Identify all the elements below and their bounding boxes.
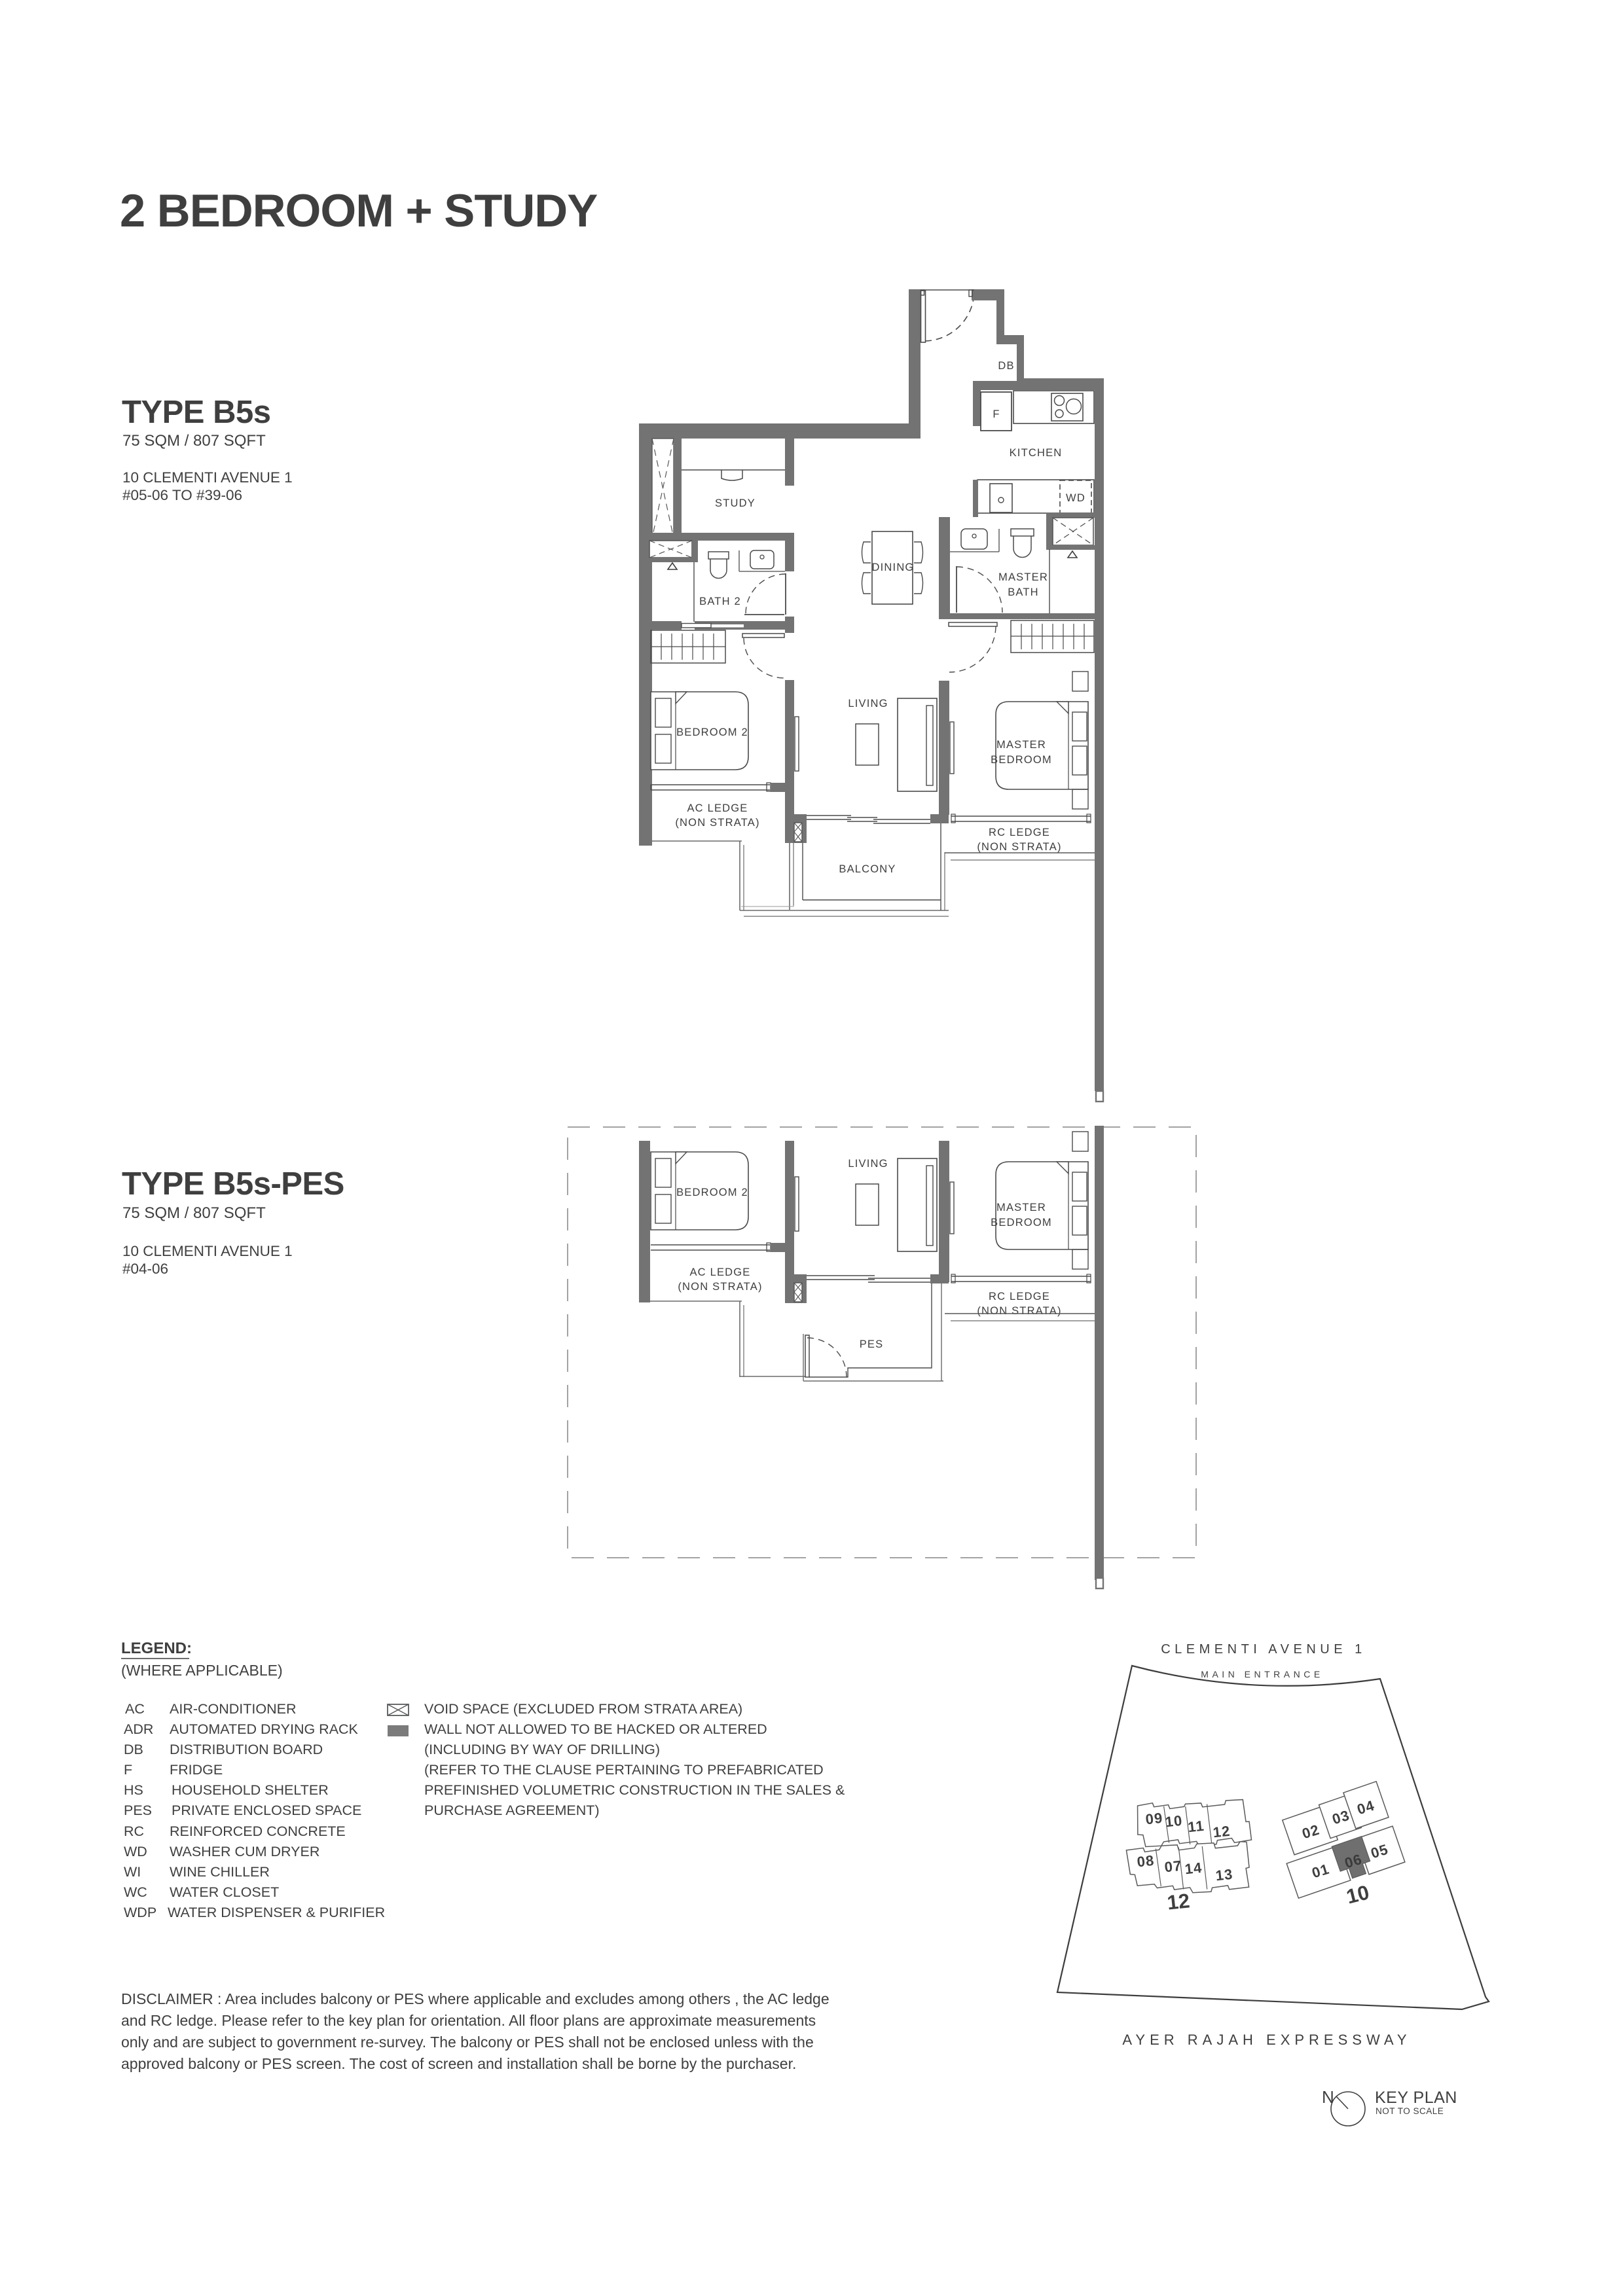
svg-text:RC: RC [124, 1823, 144, 1839]
svg-text:PREFINISHED VOLUMETRIC CONSTRU: PREFINISHED VOLUMETRIC CONSTRUCTION IN T… [424, 1782, 845, 1798]
svg-text:10 CLEMENTI AVENUE 1: 10 CLEMENTI AVENUE 1 [122, 469, 293, 486]
svg-text:CLEMENTI AVENUE 1: CLEMENTI AVENUE 1 [1161, 1642, 1366, 1657]
svg-text:approved balcony or PES screen: approved balcony or PES screen. The cost… [121, 2055, 796, 2072]
svg-text:and RC ledge. Please refer to: and RC ledge. Please refer to the key pl… [121, 2012, 816, 2029]
svg-text:WATER DISPENSER & PURIFIER: WATER DISPENSER & PURIFIER [168, 1905, 385, 1920]
svg-text:NOT TO SCALE: NOT TO SCALE [1376, 2106, 1444, 2116]
svg-text:WASHER CUM DRYER: WASHER CUM DRYER [170, 1844, 319, 1859]
svg-text:N: N [1322, 2087, 1334, 2107]
svg-text:PES: PES [124, 1803, 152, 1818]
svg-text:WI: WI [124, 1864, 141, 1880]
svg-text:WALL NOT ALLOWED TO BE HACKED: WALL NOT ALLOWED TO BE HACKED OR ALTERED [424, 1721, 767, 1737]
svg-text:LIVING: LIVING [848, 1158, 888, 1170]
svg-text:AIR-CONDITIONER: AIR-CONDITIONER [170, 1701, 297, 1717]
svg-text:AC: AC [125, 1701, 145, 1717]
svg-text:14: 14 [1184, 1859, 1203, 1878]
svg-text:11: 11 [1187, 1818, 1205, 1836]
svg-text:DISTRIBUTION BOARD: DISTRIBUTION BOARD [170, 1742, 323, 1757]
svg-text:AC LEDGE: AC LEDGE [687, 802, 748, 814]
svg-text:PURCHASE AGREEMENT): PURCHASE AGREEMENT) [424, 1803, 600, 1818]
svg-text:10: 10 [1344, 1880, 1372, 1908]
svg-text:12: 12 [1212, 1823, 1231, 1841]
svg-text:13: 13 [1214, 1866, 1233, 1884]
svg-text:10 CLEMENTI AVENUE 1: 10 CLEMENTI AVENUE 1 [122, 1243, 293, 1259]
svg-text:LEGEND:: LEGEND: [121, 1640, 192, 1657]
svg-text:WD: WD [1066, 492, 1085, 504]
svg-text:AYER RAJAH EXPRESSWAY: AYER RAJAH EXPRESSWAY [1122, 2032, 1411, 2048]
svg-text:LIVING: LIVING [848, 698, 888, 709]
svg-text:DISCLAIMER : Area includes bal: DISCLAIMER : Area includes balcony or PE… [121, 1990, 830, 2007]
svg-text:BEDROOM 2: BEDROOM 2 [676, 726, 748, 738]
svg-text:DB: DB [124, 1742, 143, 1757]
svg-text:FRIDGE: FRIDGE [170, 1762, 223, 1778]
svg-text:12: 12 [1166, 1889, 1191, 1914]
svg-text:2 BEDROOM + STUDY: 2 BEDROOM + STUDY [120, 185, 597, 236]
svg-text:RC LEDGE: RC LEDGE [989, 827, 1050, 838]
svg-text:KITCHEN: KITCHEN [1010, 447, 1063, 459]
svg-text:HS: HS [124, 1782, 143, 1798]
svg-text:PRIVATE ENCLOSED SPACE: PRIVATE ENCLOSED SPACE [172, 1803, 361, 1818]
svg-text:08: 08 [1136, 1852, 1155, 1871]
svg-text:10: 10 [1164, 1812, 1183, 1831]
svg-text:DINING: DINING [872, 562, 915, 573]
svg-text:MASTER: MASTER [996, 1202, 1046, 1213]
svg-text:DB: DB [998, 360, 1014, 372]
svg-text:PES: PES [860, 1338, 884, 1350]
svg-text:WINE CHILLER: WINE CHILLER [170, 1864, 270, 1880]
svg-text:(NON STRATA): (NON STRATA) [675, 817, 759, 829]
svg-text:AC LEDGE: AC LEDGE [689, 1266, 750, 1278]
svg-text:VOID SPACE (EXCLUDED FROM STRA: VOID SPACE (EXCLUDED FROM STRATA AREA) [424, 1701, 742, 1717]
svg-text:STUDY: STUDY [715, 497, 756, 509]
svg-text:#05-06 TO #39-06: #05-06 TO #39-06 [122, 487, 242, 503]
svg-text:BATH 2: BATH 2 [699, 596, 741, 607]
svg-text:WD: WD [124, 1844, 147, 1859]
svg-text:(INCLUDING BY WAY OF DRILLING): (INCLUDING BY WAY OF DRILLING) [424, 1742, 660, 1757]
svg-text:(NON STRATA): (NON STRATA) [678, 1281, 762, 1293]
svg-text:F: F [124, 1762, 132, 1778]
svg-text:(REFER TO THE CLAUSE PERTAININ: (REFER TO THE CLAUSE PERTAINING TO PREFA… [424, 1762, 824, 1778]
svg-text:RC LEDGE: RC LEDGE [989, 1291, 1050, 1302]
svg-text:(WHERE APPLICABLE): (WHERE APPLICABLE) [121, 1662, 283, 1679]
svg-text:MASTER: MASTER [996, 739, 1046, 751]
svg-text:AUTOMATED DRYING RACK: AUTOMATED DRYING RACK [170, 1721, 359, 1737]
svg-text:TYPE B5s: TYPE B5s [122, 395, 270, 430]
svg-text:(NON STRATA): (NON STRATA) [977, 841, 1061, 853]
svg-text:BATH: BATH [1008, 586, 1039, 598]
svg-text:75 SQM / 807 SQFT: 75 SQM / 807 SQFT [122, 1204, 266, 1222]
svg-text:BALCONY: BALCONY [839, 863, 896, 875]
svg-text:09: 09 [1144, 1810, 1163, 1828]
svg-text:WDP: WDP [124, 1905, 156, 1920]
svg-text:MASTER: MASTER [998, 571, 1048, 583]
svg-text:MAIN ENTRANCE: MAIN ENTRANCE [1201, 1669, 1323, 1679]
svg-text:#04-06: #04-06 [122, 1261, 168, 1277]
svg-text:WATER CLOSET: WATER CLOSET [170, 1884, 279, 1900]
svg-text:BEDROOM 2: BEDROOM 2 [676, 1187, 748, 1198]
svg-text:ADR: ADR [124, 1721, 153, 1737]
svg-text:BEDROOM: BEDROOM [991, 1217, 1052, 1229]
svg-text:WC: WC [124, 1884, 147, 1900]
svg-text:75 SQM / 807 SQFT: 75 SQM / 807 SQFT [122, 432, 266, 450]
svg-text:(NON STRATA): (NON STRATA) [977, 1305, 1061, 1317]
svg-text:only and are subject to govern: only and are subject to government re-su… [121, 2034, 814, 2051]
svg-text:BEDROOM: BEDROOM [991, 754, 1052, 766]
svg-text:07: 07 [1163, 1857, 1182, 1876]
svg-text:TYPE B5s-PES: TYPE B5s-PES [122, 1166, 344, 1202]
svg-text:F: F [993, 408, 1000, 420]
svg-text:REINFORCED CONCRETE: REINFORCED CONCRETE [170, 1823, 346, 1839]
svg-text:HOUSEHOLD SHELTER: HOUSEHOLD SHELTER [172, 1782, 329, 1798]
svg-text:KEY PLAN: KEY PLAN [1375, 2089, 1457, 2107]
